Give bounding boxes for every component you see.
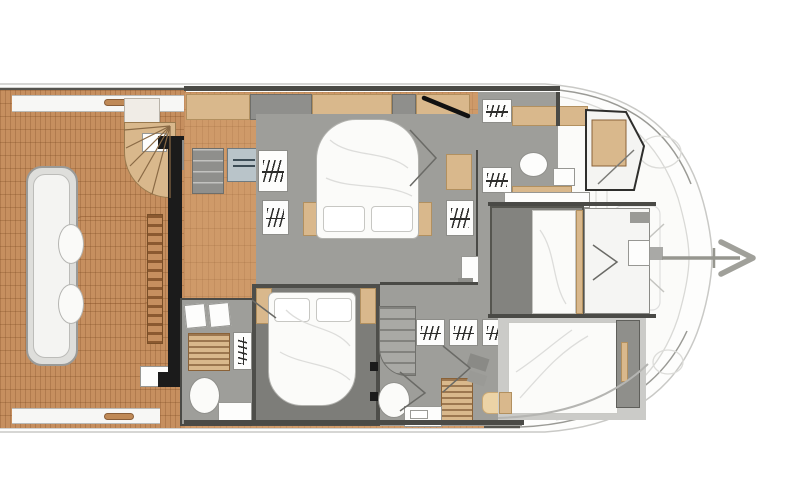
door-swing	[252, 130, 617, 411]
floorplan-canvas	[0, 0, 810, 500]
spiral-stair-treads	[124, 126, 170, 198]
detail-lines-svg	[0, 0, 810, 500]
hull-step-line	[498, 364, 648, 418]
duvet-folds	[280, 140, 588, 398]
stairs-icon	[424, 98, 468, 116]
